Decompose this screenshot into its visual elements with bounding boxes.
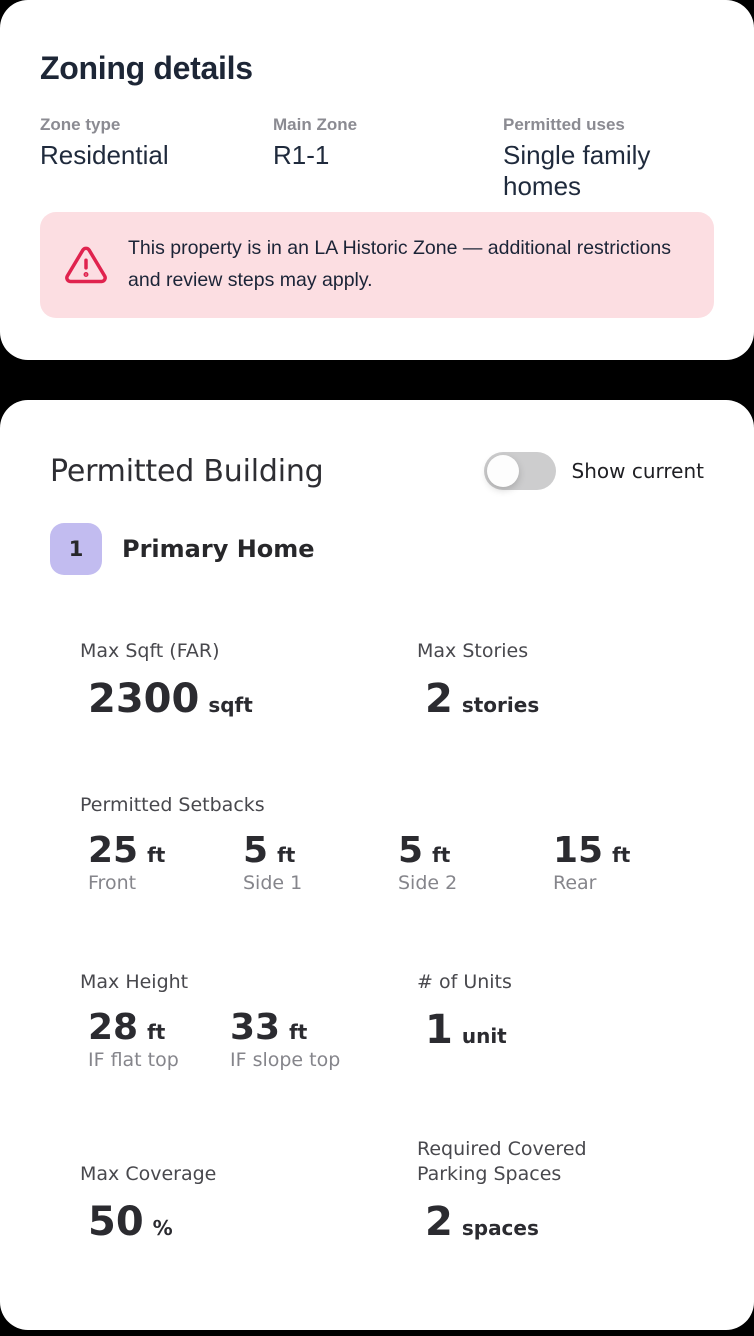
setback-rear-name: Rear [545, 872, 704, 894]
zone-type-value: Residential [40, 140, 273, 171]
max-stories-unit: stories [462, 693, 539, 717]
max-coverage-value-row: 50 % [80, 1202, 417, 1242]
setback-side2-unit: ft [432, 843, 450, 867]
primary-home-header: 1 Primary Home [50, 523, 704, 575]
max-height-substats: 28 ft IF flat top 33 ft IF slope top [80, 995, 417, 1071]
permitted-uses-value: Single family homes [503, 140, 714, 202]
show-current-toggle[interactable] [484, 452, 556, 490]
max-height-flat-name: IF flat top [80, 1049, 222, 1071]
main-zone-field: Main Zone R1-1 [273, 115, 503, 202]
zone-type-label: Zone type [40, 115, 273, 135]
setback-front: 25 ft Front [80, 818, 235, 894]
parking-label: Required Covered Parking Spaces [417, 1137, 657, 1187]
max-coverage-stat: Max Coverage 50 % [80, 1137, 417, 1242]
max-height-stat: Max Height 28 ft IF flat top 33 ft [80, 970, 417, 1071]
stats-row-coverage-parking: Max Coverage 50 % Required Covered Parki… [80, 1137, 704, 1242]
stats-row-sqft-stories: Max Sqft (FAR) 2300 sqft Max Stories 2 s… [80, 639, 704, 719]
max-height-label: Max Height [80, 970, 417, 995]
max-stories-value: 2 [425, 679, 453, 719]
setback-side1-unit: ft [277, 843, 295, 867]
show-current-label: Show current [572, 459, 704, 483]
units-value: 1 [425, 1010, 453, 1050]
units-unit: unit [462, 1024, 507, 1048]
permitted-building-header: Permitted Building Show current [50, 400, 704, 490]
permitted-uses-label: Permitted uses [503, 115, 714, 135]
show-current-toggle-group: Show current [484, 452, 704, 490]
main-zone-value: R1-1 [273, 140, 503, 171]
setback-side1-value: 5 [243, 833, 268, 869]
parking-value: 2 [425, 1202, 453, 1242]
zone-type-field: Zone type Residential [40, 115, 273, 202]
max-sqft-value: 2300 [88, 679, 199, 719]
parking-stat: Required Covered Parking Spaces 2 spaces [417, 1137, 704, 1242]
page-background: { "colors": { "page_background": "#00000… [0, 0, 754, 1336]
max-height-flat-unit: ft [147, 1020, 165, 1044]
historic-zone-warning-banner: This property is in an LA Historic Zone … [40, 212, 714, 317]
main-zone-label: Main Zone [273, 115, 503, 135]
zoning-details-title: Zoning details [40, 0, 714, 87]
warning-triangle-icon [64, 243, 108, 287]
historic-zone-warning-text: This property is in an LA Historic Zone … [128, 233, 690, 296]
max-height-flat-value: 28 [88, 1010, 138, 1046]
max-height-slope-value: 33 [230, 1010, 280, 1046]
setback-side2-name: Side 2 [390, 872, 545, 894]
setback-rear: 15 ft Rear [545, 818, 704, 894]
parking-value-row: 2 spaces [417, 1202, 704, 1242]
setback-front-value: 25 [88, 833, 138, 869]
max-height-slope: 33 ft IF slope top [222, 995, 364, 1071]
zoning-details-card: Zoning details Zone type Residential Mai… [0, 0, 754, 360]
setbacks-grid: 25 ft Front 5 ft Side 1 5 ft [80, 818, 704, 894]
setback-rear-unit: ft [612, 843, 630, 867]
setbacks-label: Permitted Setbacks [80, 793, 704, 818]
permitted-uses-field: Permitted uses Single family homes [503, 115, 714, 202]
max-height-slope-name: IF slope top [222, 1049, 364, 1071]
max-height-flat: 28 ft IF flat top [80, 995, 222, 1071]
max-height-slope-unit: ft [289, 1020, 307, 1044]
setback-side1-name: Side 1 [235, 872, 390, 894]
max-sqft-value-row: 2300 sqft [80, 679, 417, 719]
setback-side2: 5 ft Side 2 [390, 818, 545, 894]
units-stat: # of Units 1 unit [417, 970, 704, 1071]
max-coverage-unit: % [153, 1216, 173, 1240]
units-value-row: 1 unit [417, 1010, 704, 1050]
max-stories-label: Max Stories [417, 639, 704, 664]
building-name: Primary Home [122, 535, 315, 563]
zone-fields-row: Zone type Residential Main Zone R1-1 Per… [40, 115, 714, 202]
permitted-building-card: Permitted Building Show current 1 Primar… [0, 400, 754, 1330]
parking-unit: spaces [462, 1216, 539, 1240]
max-sqft-label: Max Sqft (FAR) [80, 639, 417, 664]
max-sqft-unit: sqft [208, 693, 252, 717]
setbacks-section: Permitted Setbacks 25 ft Front 5 ft Side… [80, 793, 704, 894]
permitted-building-title: Permitted Building [50, 454, 324, 489]
setback-side1: 5 ft Side 1 [235, 818, 390, 894]
max-coverage-value: 50 [88, 1202, 144, 1242]
toggle-knob [487, 455, 519, 487]
stats-row-height-units: Max Height 28 ft IF flat top 33 ft [80, 970, 704, 1071]
setback-front-unit: ft [147, 843, 165, 867]
building-stats: Max Sqft (FAR) 2300 sqft Max Stories 2 s… [80, 639, 704, 1242]
max-coverage-label: Max Coverage [80, 1162, 417, 1187]
building-index-badge: 1 [50, 523, 102, 575]
max-sqft-stat: Max Sqft (FAR) 2300 sqft [80, 639, 417, 719]
units-label: # of Units [417, 970, 704, 995]
setback-side2-value: 5 [398, 833, 423, 869]
max-stories-stat: Max Stories 2 stories [417, 639, 704, 719]
max-stories-value-row: 2 stories [417, 679, 704, 719]
setback-rear-value: 15 [553, 833, 603, 869]
setback-front-name: Front [80, 872, 235, 894]
